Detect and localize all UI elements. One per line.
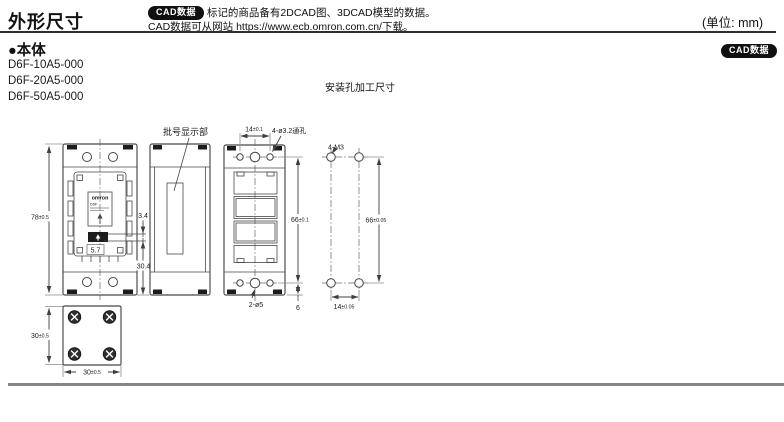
corner-screw-icon: [68, 311, 81, 324]
datasheet-page: 外形尺寸 CAD数据 标记的商品备有2DCAD图、3DCAD模型的数据。 CAD…: [0, 0, 784, 422]
center-holes-label: 2-ø5: [249, 302, 264, 309]
front-view-drawing: omron D6F 5.7 3.4 3: [30, 139, 153, 300]
corner-screw-icon: [103, 348, 116, 361]
omron-logo-text: omron: [92, 196, 109, 202]
dimension-drawings: omron D6F 5.7 3.4 3: [0, 0, 784, 422]
mounting-hole: [83, 278, 92, 287]
bottom-view-width-dimension: 30±0.5: [83, 370, 101, 377]
front-height-dimension: 78±0.5: [31, 215, 49, 222]
dim-3-4: 3.4: [138, 213, 148, 220]
screw-thread-label: 4-M3: [328, 145, 344, 152]
dim-5-7: 5.7: [91, 248, 101, 255]
back-top-dimension: 14±0.1: [245, 127, 263, 134]
label-model-text: D6F: [90, 203, 98, 207]
flow-direction-arrow-icon: [97, 214, 102, 219]
corner-screw-icon: [68, 348, 81, 361]
mounting-width-dimension: 14±0.05: [334, 304, 355, 311]
dim-30-4: 30.4: [137, 264, 151, 271]
back-height-dimension: 66±0.1: [291, 217, 309, 224]
lot-number-callout: 批号显示部: [163, 126, 208, 137]
mounting-hole: [83, 153, 92, 162]
mounting-height-dimension: 66±0.05: [366, 218, 387, 225]
lot-number-window: [167, 183, 183, 254]
bottom-view-drawing: 30±0.5: [30, 306, 121, 377]
mounting-hole: [109, 278, 118, 287]
flow-direction-badge: [88, 232, 108, 242]
bottom-offset-dimension: 6: [296, 305, 300, 312]
side-view-drawing: 批号显示部: [150, 126, 210, 295]
corner-screw-icon: [103, 311, 116, 324]
through-holes-label: 4-ø3.2通孔: [272, 126, 306, 135]
bottom-view-height-dimension: 30±0.5: [31, 333, 49, 340]
back-view-drawing: 14±0.1 4-ø3.2通孔 66±0.1 6 2-ø5: [224, 126, 316, 312]
mounting-hole-drawing: 4-M3 66±0.05 14±0.05: [322, 145, 395, 312]
mounting-hole: [109, 153, 118, 162]
footer-rule: [8, 383, 784, 386]
